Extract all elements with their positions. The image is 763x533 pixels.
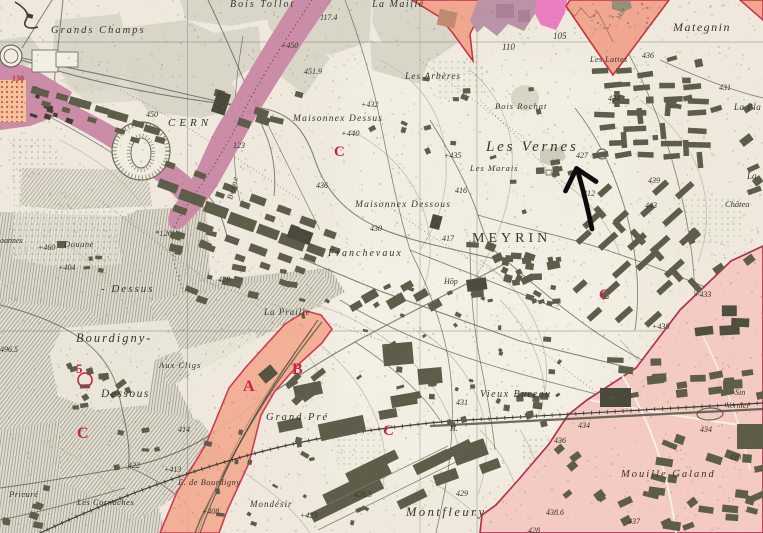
svg-text:436: 436 xyxy=(316,181,328,190)
svg-text:417: 417 xyxy=(442,234,455,243)
svg-text:416: 416 xyxy=(455,186,467,195)
svg-text:Vieux Bureau: Vieux Bureau xyxy=(480,389,552,400)
svg-text:A: A xyxy=(243,378,255,395)
svg-text:110: 110 xyxy=(502,42,515,52)
svg-text:Grands Champs: Grands Champs xyxy=(51,25,146,36)
svg-text:105: 105 xyxy=(553,31,567,41)
svg-text:439: 439 xyxy=(729,453,741,462)
svg-text:C: C xyxy=(383,423,394,439)
svg-text:450: 450 xyxy=(146,110,158,119)
svg-text:Mategnin: Mategnin xyxy=(672,20,731,34)
svg-text:Les Cornaches: Les Cornaches xyxy=(76,497,134,507)
svg-text:E. de Bourdigny: E. de Bourdigny xyxy=(177,477,241,487)
svg-text:H.: H. xyxy=(449,424,458,433)
svg-text:117.4: 117.4 xyxy=(320,13,337,22)
svg-text:Maisonnex Dessous: Maisonnex Dessous xyxy=(354,200,451,210)
svg-text:430: 430 xyxy=(370,224,382,233)
svg-text:Les Arbères: Les Arbères xyxy=(404,72,461,82)
svg-text:437: 437 xyxy=(628,517,641,526)
svg-text:CERN: CERN xyxy=(168,117,212,129)
svg-text:La: La xyxy=(746,171,757,181)
svg-text:La Pla: La Pla xyxy=(733,102,761,112)
svg-text:C: C xyxy=(334,144,345,160)
svg-text:Douane: Douane xyxy=(63,239,94,249)
svg-text:Vernier: Vernier xyxy=(726,401,750,410)
svg-text:429: 429 xyxy=(456,489,468,498)
svg-text:Les Vernes: Les Vernes xyxy=(485,139,579,155)
svg-text:+440: +440 xyxy=(341,128,360,138)
svg-text:451.9: 451.9 xyxy=(304,67,322,76)
svg-text:+435: +435 xyxy=(444,151,461,160)
svg-text:+408: +408 xyxy=(202,507,219,516)
svg-text:434: 434 xyxy=(578,421,590,430)
svg-text:Prieuré: Prieuré xyxy=(8,489,39,499)
svg-text:496.5: 496.5 xyxy=(0,345,18,354)
svg-text:428.5: 428.5 xyxy=(354,490,372,499)
svg-text:Aux Cligs: Aux Cligs xyxy=(158,360,201,370)
svg-text:+460: +460 xyxy=(38,243,55,252)
svg-text:Les Marais: Les Marais xyxy=(469,163,519,173)
svg-text:414: 414 xyxy=(178,425,190,434)
svg-text:+423: +423 xyxy=(300,511,317,520)
svg-text:Sin: Sin xyxy=(735,388,745,397)
svg-text:B: B xyxy=(292,361,303,378)
svg-text:434: 434 xyxy=(608,94,620,103)
svg-text:+450: +450 xyxy=(281,41,298,50)
svg-text:436: 436 xyxy=(642,51,654,60)
svg-text:436: 436 xyxy=(554,436,566,445)
svg-text:Châtea: Châtea xyxy=(725,199,750,209)
svg-text:+432: +432 xyxy=(361,100,378,109)
svg-text:Bois Tollot: Bois Tollot xyxy=(230,0,295,10)
svg-text:422: 422 xyxy=(128,461,140,470)
svg-text:130: 130 xyxy=(12,74,24,83)
svg-text:*126: *126 xyxy=(155,228,173,238)
svg-text:434: 434 xyxy=(700,425,712,434)
svg-text:443: 443 xyxy=(645,201,657,210)
svg-text:Maisonnex Dessus: Maisonnex Dessus xyxy=(292,114,383,124)
svg-text:427: 427 xyxy=(576,151,589,160)
svg-text:C: C xyxy=(599,287,610,303)
svg-text:428: 428 xyxy=(528,526,540,533)
svg-text:+404: +404 xyxy=(58,263,75,272)
svg-text:439: 439 xyxy=(648,176,660,185)
svg-text:428: 428 xyxy=(218,275,230,284)
svg-text:431: 431 xyxy=(456,398,468,407)
svg-text:- Dessus: - Dessus xyxy=(101,283,155,295)
svg-text:Franchevaux: Franchevaux xyxy=(327,248,403,259)
svg-text:C: C xyxy=(77,425,89,442)
svg-text:123: 123 xyxy=(233,141,245,150)
svg-text:La Maillé: La Maillé xyxy=(371,0,425,10)
svg-text:Bois Rochat: Bois Rochat xyxy=(495,101,547,111)
svg-text:Mondésir: Mondésir xyxy=(249,499,293,509)
svg-text:La Praille: La Praille xyxy=(263,307,311,317)
svg-text:431: 431 xyxy=(719,83,731,92)
svg-text:MEYRIN: MEYRIN xyxy=(472,231,551,246)
svg-text:+413: +413 xyxy=(164,465,181,474)
svg-text:oannes: oannes xyxy=(0,236,23,245)
svg-text:Dessous: Dessous xyxy=(100,388,150,400)
svg-text:Grand Pré: Grand Pré xyxy=(266,412,329,423)
svg-text:Montfleury: Montfleury xyxy=(405,505,487,519)
svg-text:Hôp: Hôp xyxy=(443,277,458,286)
